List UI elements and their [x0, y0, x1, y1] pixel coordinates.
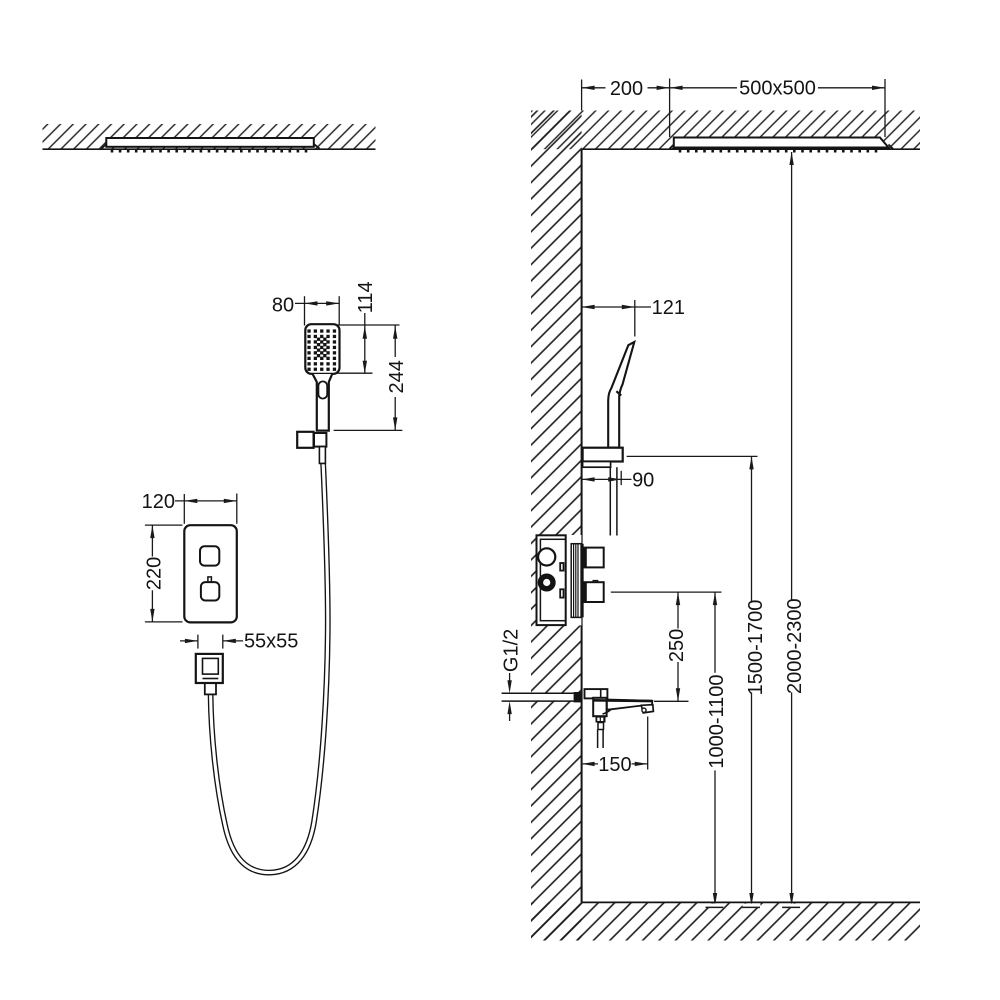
svg-text:114: 114 — [355, 281, 377, 313]
svg-text:150: 150 — [598, 754, 631, 776]
svg-text:90: 90 — [632, 469, 654, 491]
svg-text:244: 244 — [386, 360, 408, 393]
svg-text:1000-1100: 1000-1100 — [706, 675, 728, 769]
svg-text:2000-2300: 2000-2300 — [784, 598, 806, 694]
svg-text:200: 200 — [610, 78, 643, 100]
svg-text:1500-1700: 1500-1700 — [745, 600, 767, 696]
svg-text:250: 250 — [666, 629, 688, 662]
svg-text:121: 121 — [652, 297, 685, 319]
svg-text:500x500: 500x500 — [739, 78, 816, 100]
svg-text:G1/2: G1/2 — [501, 629, 523, 672]
svg-text:55x55: 55x55 — [244, 630, 299, 652]
svg-text:120: 120 — [142, 491, 175, 513]
svg-text:220: 220 — [143, 557, 165, 590]
svg-text:80: 80 — [272, 295, 294, 317]
